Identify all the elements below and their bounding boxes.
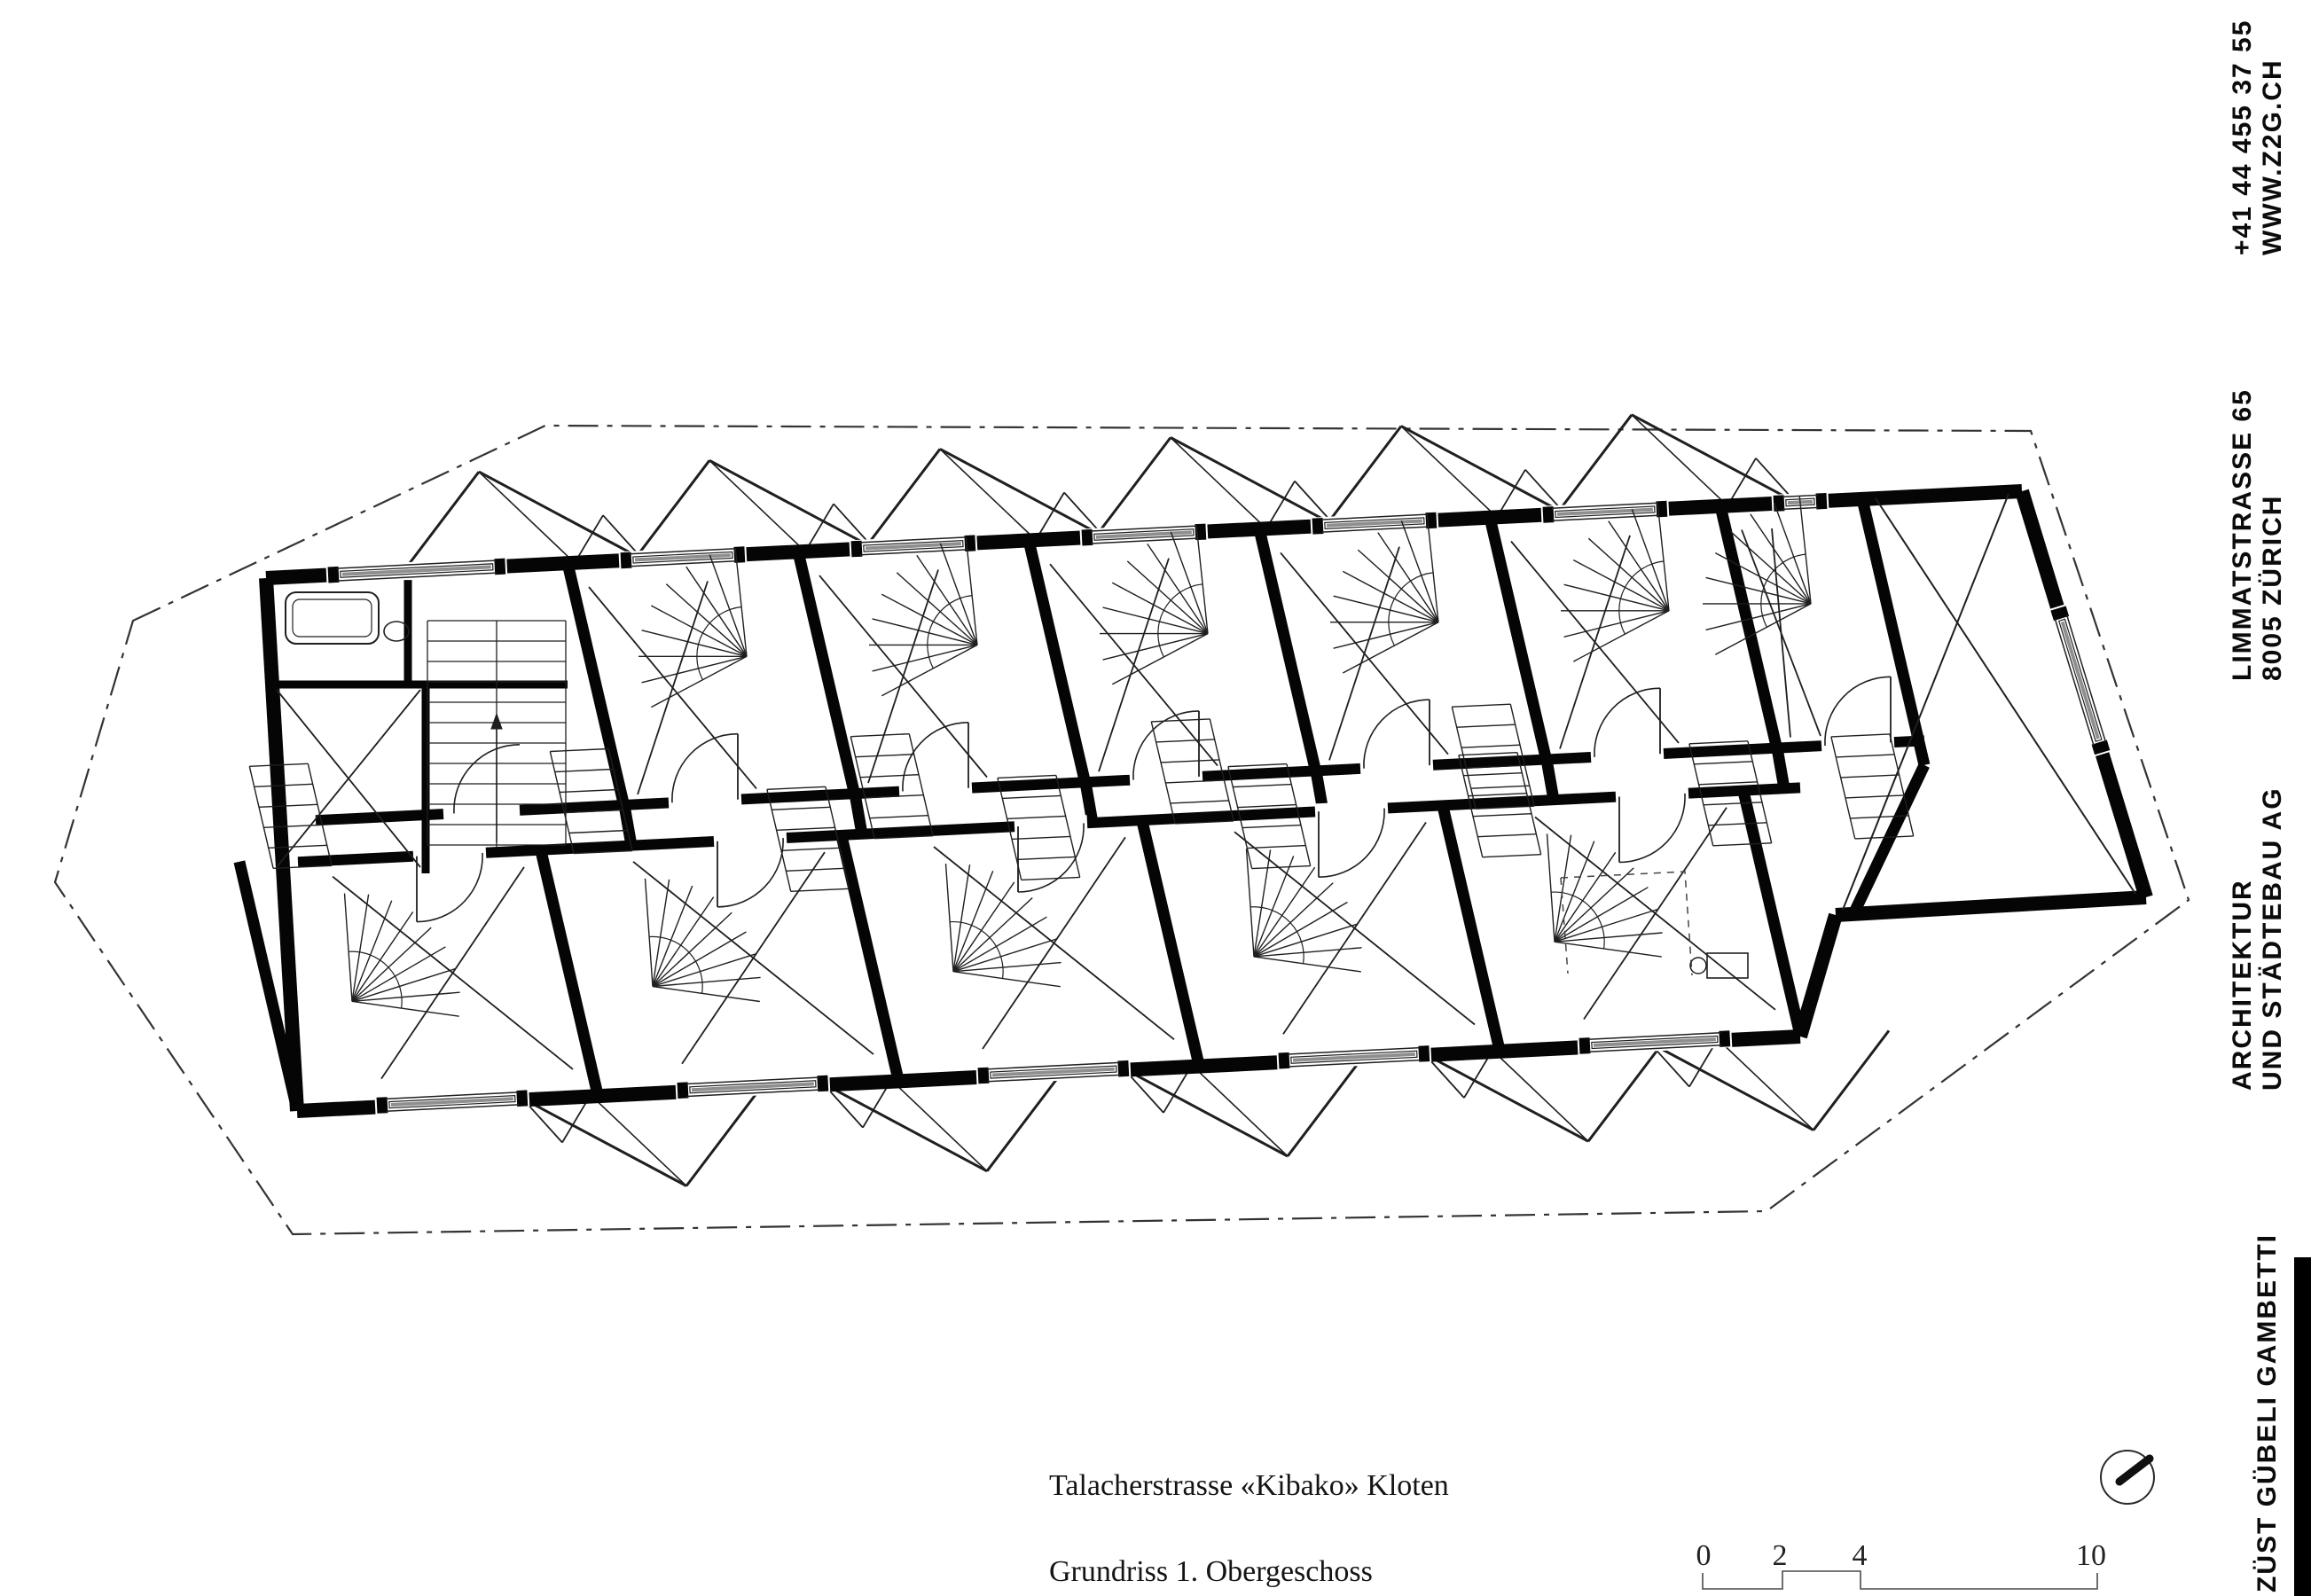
- winder-stair: [1254, 883, 1333, 957]
- balcony-fold: [591, 1095, 686, 1186]
- room-x-mark: [868, 570, 938, 784]
- stair-tread: [1457, 724, 1516, 727]
- wall-jog-southeast: [1800, 915, 1836, 1037]
- firm-name-label: ZÜST GÜBELI GAMBETTI: [2252, 1233, 2282, 1592]
- stair-tread: [555, 770, 614, 772]
- stair-tread: [1161, 760, 1219, 763]
- floor-plan-svg: [0, 0, 2311, 1596]
- winder-stair: [1555, 868, 1633, 942]
- stair-tread: [1228, 764, 1287, 767]
- window-core: [326, 558, 508, 584]
- stair-tread: [1845, 795, 1904, 798]
- stair-tread: [569, 831, 628, 833]
- balcony-fold: [709, 460, 805, 552]
- drawing-title: Grundriss 1. Obergeschoss: [1049, 1556, 1373, 1588]
- balcony-edge: [634, 460, 709, 559]
- stair-tread: [1461, 745, 1520, 747]
- stair-tread: [781, 848, 840, 850]
- balcony-edge: [865, 449, 940, 548]
- winder-stair: [1573, 611, 1669, 661]
- stair-tread: [1473, 814, 1532, 817]
- winder-stair: [1103, 607, 1208, 634]
- door-opening: [899, 788, 972, 792]
- room-x-mark: [1584, 808, 1727, 1020]
- door-opening: [1616, 794, 1688, 797]
- winder-stair: [953, 917, 1046, 972]
- terrace-x-mark: [1843, 494, 2009, 910]
- winder-stair: [352, 927, 431, 1001]
- balcony-edge: [987, 1072, 1062, 1171]
- winder-stair: [653, 932, 746, 987]
- winder-stair: [1343, 622, 1438, 673]
- stair-tread: [1483, 855, 1541, 857]
- balcony-edge: [1171, 438, 1335, 526]
- stair-tread: [1689, 741, 1748, 744]
- scale-bar: [1703, 1571, 2097, 1589]
- balcony-edge: [1588, 1042, 1664, 1141]
- balcony-fold: [1171, 438, 1266, 529]
- door-opening: [443, 810, 520, 814]
- desk: [1707, 953, 1748, 978]
- stair-tread: [1452, 704, 1510, 707]
- corridor-stub-wall: [1547, 760, 1554, 801]
- winder-stair: [1751, 514, 1811, 604]
- winder-stair: [352, 1001, 459, 1016]
- window-top-unit: [1311, 512, 1439, 536]
- stair-tread: [767, 786, 826, 789]
- balcony-fold: [1401, 426, 1497, 518]
- winder-stair: [873, 619, 977, 645]
- stair-tread: [856, 755, 914, 757]
- terrace-x-mark: [1876, 498, 2135, 894]
- winder-stair: [953, 972, 1061, 987]
- window-top-unit: [850, 534, 978, 558]
- party-wall-top: [1029, 540, 1085, 786]
- scale-label-4: 4: [1853, 1539, 1868, 1573]
- door-opening: [1591, 754, 1664, 757]
- stair-tread: [1002, 795, 1061, 798]
- party-wall-top: [568, 563, 624, 808]
- stair-tread: [1459, 753, 1517, 755]
- firm-tagline-block: ARCHITEKTUR UND STÄDTEBAU AG: [2228, 786, 2288, 1091]
- stair-tread: [1233, 785, 1291, 787]
- firm-phone: +41 44 455 37 55: [2228, 20, 2257, 255]
- winder-stair: [651, 656, 747, 707]
- balcony-edge: [1326, 426, 1401, 526]
- window-bottom-unit: [1578, 1029, 1733, 1055]
- stair-tread: [1699, 782, 1758, 785]
- stair-tread: [1247, 846, 1305, 849]
- winder-stair: [1706, 604, 1811, 630]
- firm-website: WWW.Z2G.CH: [2258, 59, 2287, 255]
- project-title: Talacherstrasse «Kibako» Kloten: [1049, 1470, 1449, 1502]
- winder-stair: [881, 645, 977, 695]
- stair-tread: [870, 816, 928, 818]
- stair-tread: [1171, 801, 1229, 803]
- window-top-unit: [1541, 500, 1670, 524]
- room-x-mark: [1329, 547, 1399, 761]
- window-bottom-unit: [976, 1060, 1132, 1085]
- winder-stair: [653, 987, 760, 1002]
- balcony-fold: [1718, 1039, 1814, 1130]
- party-wall-top: [1720, 506, 1777, 752]
- firm-tagline-1: ARCHITEKTUR: [2228, 879, 2257, 1091]
- balcony-edge: [1288, 1057, 1363, 1156]
- firm-address-block: LIMMATSTRASSE 65 8005 ZÜRICH: [2228, 388, 2288, 681]
- stair-tread: [777, 827, 835, 830]
- winder-stair: [653, 880, 670, 987]
- stair-tread: [1713, 843, 1772, 846]
- stair-tread: [1238, 805, 1297, 808]
- balcony-edge: [1401, 426, 1565, 514]
- stair-tread: [1252, 866, 1311, 869]
- winder-stair: [1555, 835, 1571, 943]
- stair-tread: [1836, 755, 1894, 757]
- stair-tread: [860, 775, 919, 778]
- party-wall-top: [798, 552, 855, 797]
- winder-stair: [1148, 544, 1208, 633]
- winder-stair: [946, 864, 954, 972]
- balcony-fold: [1492, 1051, 1588, 1142]
- terrace-wall-west: [1862, 499, 1924, 765]
- winder-stair: [653, 912, 732, 986]
- balcony-edge: [823, 1084, 987, 1171]
- stair-tread: [1012, 836, 1070, 839]
- balcony-edge: [1124, 1068, 1288, 1156]
- window-top-unit: [619, 545, 748, 569]
- room-x-mark: [381, 867, 524, 1079]
- door-opening: [1014, 823, 1087, 826]
- balcony-edge: [1095, 438, 1171, 537]
- party-wall-bottom: [1141, 818, 1199, 1065]
- winder-stair: [345, 894, 353, 1002]
- bathtub-inner: [293, 599, 372, 637]
- scale-label-10: 10: [2076, 1539, 2106, 1573]
- winder-stair: [1334, 596, 1438, 622]
- door-opening: [1315, 808, 1388, 811]
- winder-stair: [642, 630, 747, 657]
- firm-address-street: LIMMATSTRASSE 65: [2228, 388, 2257, 681]
- balcony-fold: [479, 472, 575, 563]
- balcony-edge: [1632, 415, 1796, 503]
- void-dashed-line: [1561, 878, 1568, 974]
- balcony-fold: [891, 1080, 987, 1171]
- winder-stair: [1715, 604, 1811, 654]
- window-bottom-unit: [1277, 1044, 1432, 1070]
- room-x-mark: [1283, 823, 1426, 1035]
- party-wall-bottom: [1743, 787, 1800, 1036]
- party-wall-bottom: [1442, 802, 1500, 1050]
- door-opening: [714, 838, 787, 841]
- stair-tread: [772, 807, 830, 810]
- stair-tread: [1016, 857, 1075, 859]
- room-x-mark: [682, 852, 825, 1064]
- winder-stair: [1564, 584, 1669, 611]
- room-x-mark: [1560, 536, 1630, 749]
- room-x-mark: [638, 581, 708, 794]
- winder-stair: [1378, 533, 1438, 622]
- firm-contact-block: +41 44 455 37 55 WWW.Z2G.CH: [2228, 20, 2288, 255]
- winder-stair: [352, 947, 445, 1002]
- stair-tread: [560, 790, 618, 793]
- door-opening: [1360, 765, 1433, 769]
- winder-stair: [953, 864, 970, 972]
- window-terrace: [2049, 604, 2111, 756]
- stair-tread: [1477, 834, 1536, 837]
- stair-tread: [1469, 794, 1527, 796]
- stair-tread: [1156, 739, 1215, 742]
- winder-stair: [1112, 634, 1208, 685]
- drawing-sheet: +41 44 455 37 55 WWW.Z2G.CH LIMMATSTRASS…: [0, 0, 2311, 1596]
- balcony-edge: [522, 1099, 686, 1186]
- terrace-wall-west: [1853, 765, 1924, 914]
- winder-stair: [1555, 888, 1648, 942]
- desk-chair: [1690, 958, 1706, 974]
- scale-label-2: 2: [1773, 1539, 1788, 1573]
- winder-stair: [1254, 849, 1271, 957]
- winder-stair: [1706, 577, 1811, 604]
- winder-stair: [1254, 957, 1361, 972]
- stair-tread: [1704, 802, 1762, 805]
- winder-stair: [686, 567, 747, 656]
- winder-stair: [1555, 942, 1662, 957]
- room-x-mark: [983, 837, 1125, 1049]
- stair-tread: [1694, 762, 1752, 764]
- stair-tread: [786, 868, 844, 871]
- window-top-unit: [1080, 522, 1209, 546]
- core-stair-arrowhead: [491, 714, 502, 729]
- stair-tread: [1471, 786, 1530, 788]
- room-x-mark: [1099, 559, 1169, 772]
- window-part: [2063, 622, 2098, 739]
- scale-label-0: 0: [1696, 1539, 1712, 1573]
- stair-tread: [1242, 825, 1301, 828]
- winder-stair: [1609, 521, 1669, 611]
- party-wall-bottom: [540, 847, 598, 1095]
- balcony-edge: [1424, 1053, 1588, 1141]
- window-bottom-unit: [375, 1089, 530, 1115]
- winder-stair: [1547, 833, 1555, 942]
- balcony-edge: [940, 449, 1104, 536]
- winder-stair: [917, 555, 977, 645]
- winder-stair: [953, 898, 1032, 972]
- balcony-edge: [479, 472, 643, 559]
- stair-tread: [1463, 773, 1522, 776]
- stair-tread: [850, 734, 909, 737]
- door-opening: [669, 800, 741, 803]
- balcony-fold: [1632, 415, 1727, 506]
- balcony-fold: [940, 449, 1036, 540]
- stair-tread: [998, 775, 1056, 778]
- stair-stringer: [249, 766, 273, 868]
- balcony-edge: [403, 472, 479, 571]
- winder-stair: [1247, 849, 1255, 957]
- balcony-fold: [1192, 1065, 1288, 1156]
- stair-tread: [1841, 775, 1900, 778]
- balcony-edge: [1649, 1043, 1814, 1130]
- winder-stair: [352, 895, 369, 1002]
- stair-tread: [1022, 877, 1080, 880]
- firm-address-city: 8005 ZÜRICH: [2258, 495, 2287, 681]
- window-bottom-unit: [676, 1075, 831, 1100]
- firm-tagline-2: UND STÄDTEBAU AG: [2258, 786, 2287, 1091]
- stair-tread: [550, 749, 608, 752]
- party-wall-bottom: [841, 832, 898, 1079]
- terrace-wall-south: [1836, 897, 2146, 915]
- corridor-stub-wall: [855, 794, 862, 834]
- balcony-edge: [1814, 1030, 1889, 1130]
- door-opening: [1130, 777, 1203, 780]
- firm-name: ZÜST GÜBELI GAMBETTI: [2252, 1233, 2283, 1592]
- corridor-stub-wall: [1777, 748, 1784, 789]
- brand-bar: [2294, 1257, 2311, 1596]
- party-wall-top: [1259, 529, 1316, 774]
- balcony-edge: [686, 1086, 762, 1185]
- bathtub: [286, 592, 379, 644]
- balcony-edge: [709, 460, 873, 548]
- stair-tread: [263, 825, 322, 827]
- stair-tread: [259, 804, 317, 807]
- winder-stair: [646, 879, 654, 987]
- winder-stair: [1254, 903, 1347, 957]
